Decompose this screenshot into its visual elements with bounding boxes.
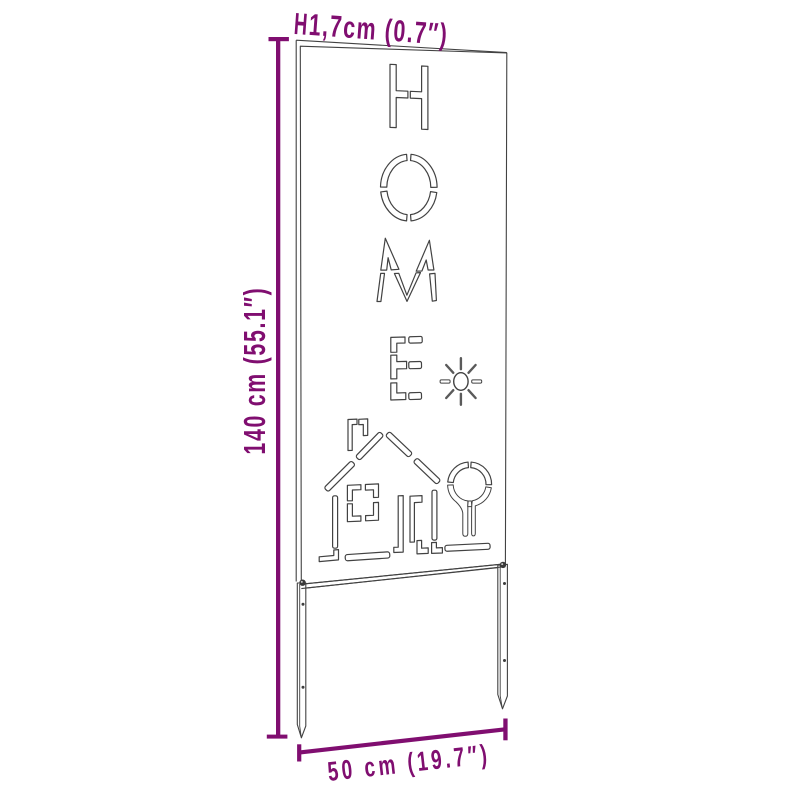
svg-text:1,7cm (0.7″): 1,7cm (0.7″)	[308, 7, 448, 52]
svg-text:140 cm (55.1″): 140 cm (55.1″)	[237, 288, 272, 454]
svg-text:H: H	[293, 7, 309, 42]
